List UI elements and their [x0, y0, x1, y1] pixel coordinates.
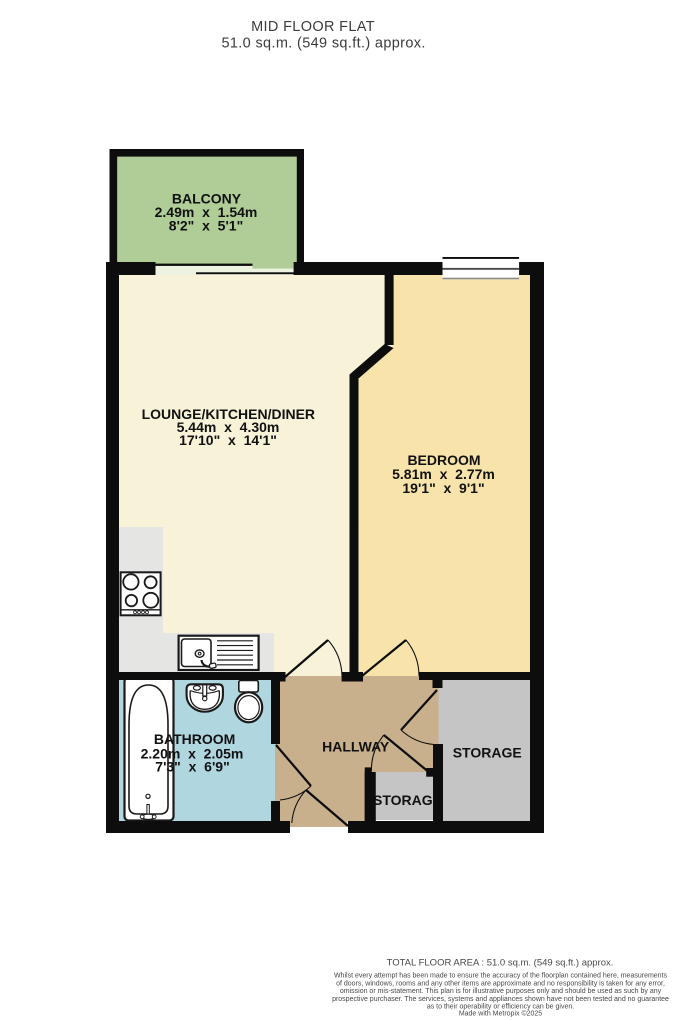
svg-text:STORAGE: STORAGE	[373, 792, 442, 808]
svg-text:7'3" x 6'9": 7'3" x 6'9"	[155, 759, 229, 775]
svg-text:51.0 sq.m. (549 sq.ft.) approx: 51.0 sq.m. (549 sq.ft.) approx.	[221, 36, 425, 52]
svg-text:TOTAL FLOOR AREA : 51.0 sq.m.: TOTAL FLOOR AREA : 51.0 sq.m. (549 sq.ft…	[387, 958, 614, 969]
svg-text:as to their operability or eff: as to their operability or efficiency ca…	[427, 1004, 574, 1011]
svg-text:omission or mis-statement. Thi: omission or mis-statement. This plan is …	[340, 988, 662, 995]
svg-text:8'2" x 5'1": 8'2" x 5'1"	[169, 218, 243, 234]
svg-text:Whilst every attempt has been: Whilst every attempt has been made to en…	[334, 973, 668, 980]
svg-text:prospective purchaser. The ser: prospective purchaser. The services, sys…	[332, 996, 669, 1003]
svg-text:17'10" x 14'1": 17'10" x 14'1"	[179, 432, 277, 448]
svg-text:STORAGE: STORAGE	[453, 745, 522, 761]
svg-text:of doors, windows, rooms and a: of doors, windows, rooms and any other i…	[336, 980, 665, 987]
svg-text:Made with Metropix ©2025: Made with Metropix ©2025	[459, 1010, 542, 1018]
svg-text:19'1" x 9'1": 19'1" x 9'1"	[402, 480, 484, 496]
svg-text:MID FLOOR FLAT: MID FLOOR FLAT	[251, 19, 375, 35]
